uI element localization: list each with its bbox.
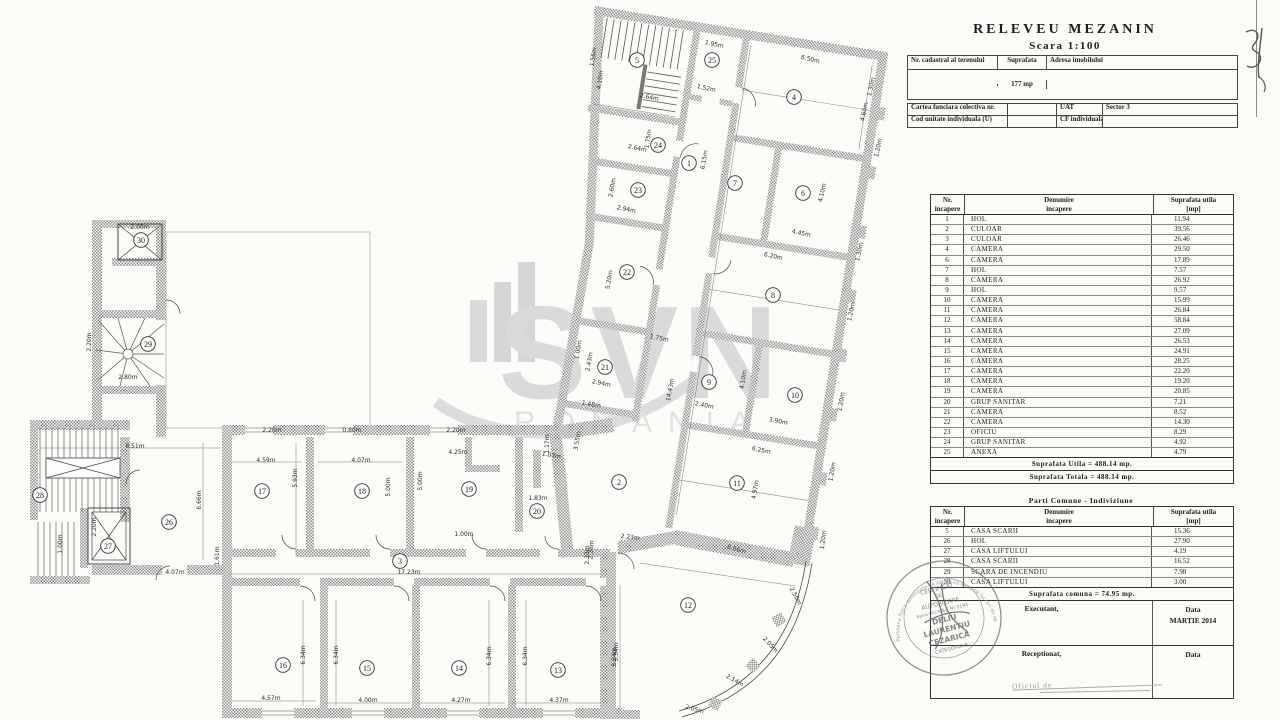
table-row: 5CASA SCARII15.36: [931, 527, 1233, 536]
table-row: 15CAMERA24.91: [931, 346, 1233, 356]
table-cell: CAMERA: [964, 357, 1152, 366]
table-cell: 7: [931, 266, 964, 275]
executant-date: MARTIE 2014: [1153, 615, 1233, 626]
table-cell: 16: [931, 357, 964, 366]
table-cell: 58.84: [1152, 316, 1233, 325]
total-totala: Suprafata Totala = 488.14 mp.: [931, 470, 1233, 483]
table-row: 3CULOAR26.46: [931, 234, 1233, 244]
table-row: 16CAMERA28.25: [931, 356, 1233, 366]
table-cell: 13: [931, 327, 964, 336]
table-row: 14CAMERA26.53: [931, 336, 1233, 346]
receptionat-data-label: Data: [1153, 646, 1233, 698]
table-cell: GRUP SANITAR: [964, 438, 1152, 447]
table-cell: HOL: [964, 537, 1152, 546]
table-row: 11CAMERA26.84: [931, 305, 1233, 315]
table-cell: 7.98: [1152, 568, 1233, 577]
table-cell: 19.20: [1152, 377, 1233, 386]
table-cell: 8.29: [1152, 428, 1233, 437]
table-row: 25ANEXA4.79: [931, 447, 1233, 457]
table-cell: 20.85: [1152, 387, 1233, 396]
table-cell: 28.25: [1152, 357, 1233, 366]
table-row: 10CAMERA15.99: [931, 295, 1233, 305]
table-cell: CAMERA: [964, 367, 1152, 376]
table-cell: 15.99: [1152, 296, 1233, 305]
table-cell: CAMERA: [964, 408, 1152, 417]
table-cell: 22.20: [1152, 367, 1233, 376]
cartea-funciara-label: Cartea funciara colectiva nr.: [908, 104, 1008, 115]
table-cell: 18: [931, 377, 964, 386]
table-cell: CAMERA: [964, 245, 1152, 254]
certification-stamp: Persoana fizica autorizata de ANCPI sa e…: [866, 548, 1036, 718]
table-cell: 4.79: [1152, 448, 1233, 457]
table-cell: CULOAR: [964, 235, 1152, 244]
table-cell: 9: [931, 286, 964, 295]
table-row: 8CAMERA26.92: [931, 275, 1233, 285]
table-row: 18CAMERA19.20: [931, 376, 1233, 386]
table-cell: CAMERA: [964, 387, 1152, 396]
cod-unitate-label: Cod unitate individuala (U): [908, 116, 1008, 127]
table-cell: 7.57: [1152, 266, 1233, 275]
cadastral-suprafata-value: 177 mp: [998, 80, 1047, 89]
cadastral-col-adresa: Adresa imobilului: [1047, 56, 1237, 69]
table-row: 1HOL11.94: [931, 215, 1233, 224]
cadastral-col-nr: Nr. cadastral al terenului: [908, 56, 998, 69]
table-cell: CAMERA: [964, 296, 1152, 305]
cadastral-block: Nr. cadastral al terenului Suprafata Adr…: [907, 55, 1238, 128]
cadastral-col-suprafata: Suprafata: [998, 56, 1047, 69]
table-cell: 6: [931, 256, 964, 265]
table-cell: 11: [931, 306, 964, 315]
table-cell: CAMERA: [964, 306, 1152, 315]
table-cell: 4.92: [1152, 438, 1233, 447]
table-cell: 24.91: [1152, 347, 1233, 356]
table-row: 7HOL7.57: [931, 265, 1233, 275]
table-cell: 2: [931, 225, 964, 234]
table-cell: 15: [931, 347, 964, 356]
table-cell: 8: [931, 276, 964, 285]
sheet-title: RELEVEU MEZANIN: [900, 22, 1230, 38]
table-row: 6CAMERA17.89: [931, 255, 1233, 265]
uat-label: UAT: [1057, 104, 1103, 115]
table-cell: ANEXA: [964, 448, 1152, 457]
table-cell: 26.53: [1152, 337, 1233, 346]
common-table-title: Parti Comune - Indiviziune: [930, 496, 1232, 505]
table-row: 20GRUP SANITAR7.21: [931, 397, 1233, 407]
table-row: 4CAMERA29.50: [931, 244, 1233, 254]
table-row: 13CAMERA27.09: [931, 326, 1233, 336]
table-cell: 26.46: [1152, 235, 1233, 244]
table-cell: 11.94: [1152, 215, 1233, 224]
table-cell: 14: [931, 337, 964, 346]
table-row: 17CAMERA22.20: [931, 366, 1233, 376]
table-cell: 23: [931, 428, 964, 437]
table-row: 23OFICIU8.29: [931, 427, 1233, 437]
table-cell: HOL: [964, 286, 1152, 295]
table-cell: 20: [931, 398, 964, 407]
table-cell: 19: [931, 387, 964, 396]
table-cell: 39.56: [1152, 225, 1233, 234]
table-cell: 14.30: [1152, 418, 1233, 427]
table-cell: 8.52: [1152, 408, 1233, 417]
table-row: 21CAMERA8.52: [931, 407, 1233, 417]
table-cell: CAMERA: [964, 256, 1152, 265]
cf-individuala-label: CF individuala: [1057, 116, 1103, 127]
table-cell: HOL: [964, 215, 1152, 224]
table-cell: GRUP SANITAR: [964, 398, 1152, 407]
table-cell: 17.89: [1152, 256, 1233, 265]
table-cell: 27.09: [1152, 327, 1233, 336]
table-cell: CAMERA: [964, 276, 1152, 285]
table-cell: 16.52: [1152, 557, 1233, 566]
table-row: 9HOL9.57: [931, 285, 1233, 295]
table-cell: 12: [931, 316, 964, 325]
sheet-scale: Scara 1:100: [900, 40, 1230, 52]
table-row: 2CULOAR39.56: [931, 224, 1233, 234]
table-cell: CAMERA: [964, 347, 1152, 356]
table-cell: 5: [931, 527, 964, 536]
table-cell: CAMERA: [964, 418, 1152, 427]
executant-data-label: Data: [1153, 604, 1233, 615]
table-cell: 29.50: [1152, 245, 1233, 254]
table-cell: 22: [931, 418, 964, 427]
table-row: 12CAMERA58.84: [931, 315, 1233, 325]
table-cell: 3: [931, 235, 964, 244]
table-cell: 4: [931, 245, 964, 254]
table-cell: CAMERA: [964, 316, 1152, 325]
table-cell: HOL: [964, 266, 1152, 275]
total-utila: Suprafata Utila = 488.14 mp.: [931, 457, 1233, 470]
documentation-panel: RELEVEU MEZANIN Scara 1:100 Nr. cadastra…: [0, 0, 1280, 720]
scanned-floorplan-sheet: SVN ROMANIA: [0, 0, 1280, 720]
table-cell: 26.84: [1152, 306, 1233, 315]
table-row: 22CAMERA14.30: [931, 417, 1233, 427]
table-cell: 27.90: [1152, 537, 1233, 546]
table-cell: 3.00: [1152, 578, 1233, 587]
table-cell: 17: [931, 367, 964, 376]
table-cell: 7.21: [1152, 398, 1233, 407]
table-cell: 26: [931, 537, 964, 546]
table-cell: CASA SCARII: [964, 527, 1152, 536]
rooms-table: Nr.incapere Denumireincapere Suprafata u…: [930, 194, 1234, 484]
table-cell: CAMERA: [964, 327, 1152, 336]
table-cell: CAMERA: [964, 377, 1152, 386]
table-cell: 26.92: [1152, 276, 1233, 285]
table-cell: 25: [931, 448, 964, 457]
uat-value: Sector 3: [1103, 104, 1237, 115]
table-row: 24GRUP SANITAR4.92: [931, 437, 1233, 447]
table-cell: 24: [931, 438, 964, 447]
table-cell: 21: [931, 408, 964, 417]
table-cell: CULOAR: [964, 225, 1152, 234]
rooms-table-body: 1HOL11.942CULOAR39.563CULOAR26.464CAMERA…: [931, 215, 1233, 457]
table-cell: CAMERA: [964, 337, 1152, 346]
table-cell: 10: [931, 296, 964, 305]
table-row: 26HOL27.90: [931, 536, 1233, 546]
table-cell: OFICIU: [964, 428, 1152, 437]
table-cell: 15.36: [1152, 527, 1233, 536]
table-cell: 9.57: [1152, 286, 1233, 295]
table-cell: 1: [931, 215, 964, 224]
cf-individuala-value: [1103, 116, 1237, 127]
table-row: 19CAMERA20.85: [931, 386, 1233, 396]
table-cell: 4.19: [1152, 547, 1233, 556]
